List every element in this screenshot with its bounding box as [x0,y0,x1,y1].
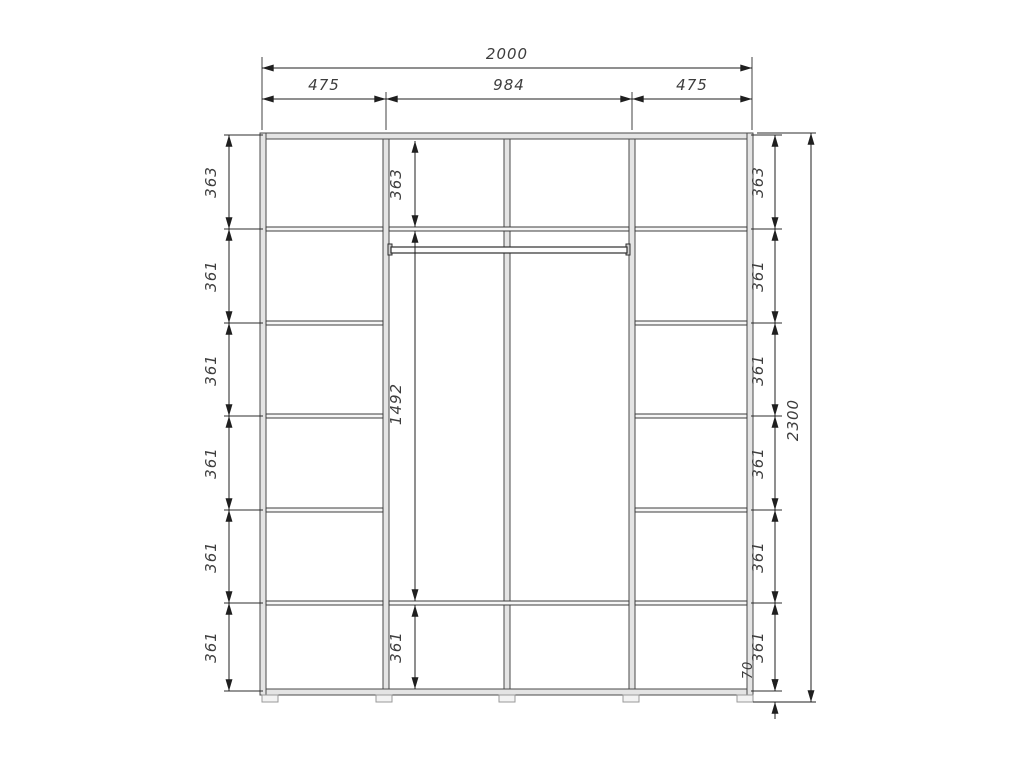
right-shelf-2 [635,321,747,325]
dim-label-left-section-width: 475 [308,76,340,94]
dim-label-overall-width: 2000 [486,45,528,63]
center-top-shelf [389,227,629,231]
dim-label-left-1: 363 [202,166,220,198]
foot-4 [623,695,639,702]
dim-label-left-2: 361 [202,260,220,292]
left-shelf-3 [266,414,383,418]
top-panel [260,133,753,139]
dim-label-center-top: 363 [387,168,405,200]
dim-label-right-5: 361 [749,541,767,573]
dim-label-overall-height: 2300 [784,399,802,441]
right-shelf-4 [635,508,747,512]
dim-label-right-6: 361 [749,631,767,663]
dim-label-left-4: 361 [202,447,220,479]
dim-label-left-3: 361 [202,354,220,386]
dim-label-left-6: 361 [202,631,220,663]
right-shelf-1 [635,227,747,231]
dim-label-right-1: 363 [749,166,767,198]
dim-label-right-3: 361 [749,354,767,386]
dim-label-right-section-width: 475 [676,76,708,94]
left-shelf-4 [266,508,383,512]
dim-label-center-bottom: 361 [387,631,405,663]
left-shelf-1 [266,227,383,231]
left-shelf-2 [266,321,383,325]
dim-label-right-4: 361 [749,447,767,479]
dim-label-right-2: 361 [749,260,767,292]
left-shelf-5 [266,601,383,605]
foot-1 [262,695,278,702]
right-shelf-5 [635,601,747,605]
foot-2 [376,695,392,702]
right-partition-panel [629,139,635,689]
background [0,0,1024,768]
foot-5 [737,695,753,702]
left-side-panel [260,133,266,695]
right-side-panel [747,133,753,695]
dim-label-left-5: 361 [202,541,220,573]
right-shelf-3 [635,414,747,418]
rod-bar [391,247,627,253]
bottom-panel [260,689,753,695]
drawing-canvas: 2000 475 984 475 363 361 361 361 361 361… [0,0,1024,768]
center-bottom-shelf [389,601,629,605]
foot-3 [499,695,515,702]
wardrobe-dimension-drawing: 2000 475 984 475 363 361 361 361 361 361… [0,0,1024,768]
dim-label-base-height: 70 [741,661,756,680]
dim-label-center-middle: 1492 [387,383,405,425]
center-divider-panel [504,139,510,689]
dim-label-center-section-width: 984 [493,76,525,94]
